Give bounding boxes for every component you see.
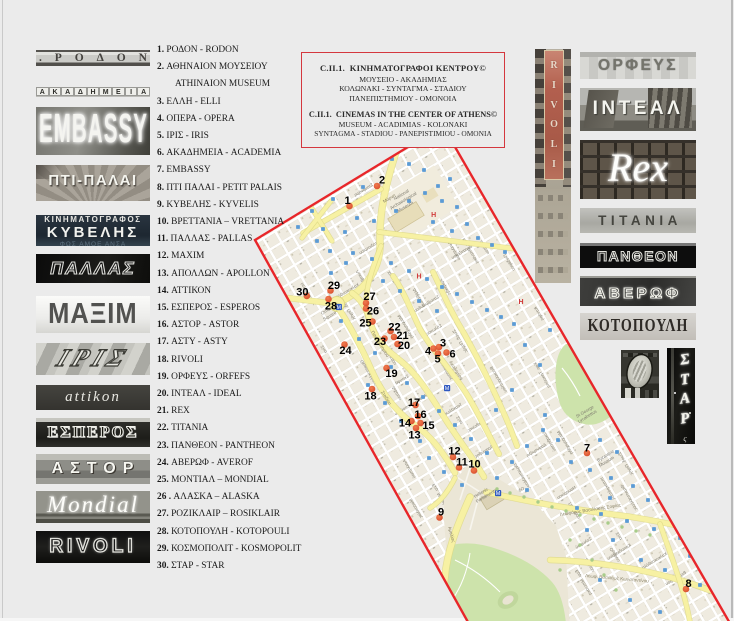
svg-text:10: 10 [468,458,480,470]
svg-text:25: 25 [359,317,371,329]
svg-text:26: 26 [367,305,379,317]
svg-text:24: 24 [339,345,352,357]
svg-text:11: 11 [456,456,468,468]
svg-text:28: 28 [325,300,337,312]
svg-text:15: 15 [422,420,434,432]
svg-text:29: 29 [328,280,340,292]
svg-text:4: 4 [425,345,432,357]
svg-text:3: 3 [440,337,446,349]
svg-text:16: 16 [414,409,426,421]
svg-text:18: 18 [364,390,376,402]
svg-text:6: 6 [449,348,455,360]
svg-text:8: 8 [685,578,691,590]
svg-text:2: 2 [379,174,385,186]
svg-text:9: 9 [438,506,444,518]
svg-text:27: 27 [363,291,375,303]
svg-text:17: 17 [408,397,420,409]
svg-text:7: 7 [584,442,590,454]
svg-text:30: 30 [296,287,308,299]
svg-text:1: 1 [344,195,350,207]
svg-text:23: 23 [374,336,386,348]
svg-text:5: 5 [434,353,440,365]
svg-text:13: 13 [408,429,420,441]
svg-text:22: 22 [388,321,400,333]
svg-text:14: 14 [399,417,412,429]
svg-text:19: 19 [385,368,397,380]
svg-text:12: 12 [448,445,460,457]
